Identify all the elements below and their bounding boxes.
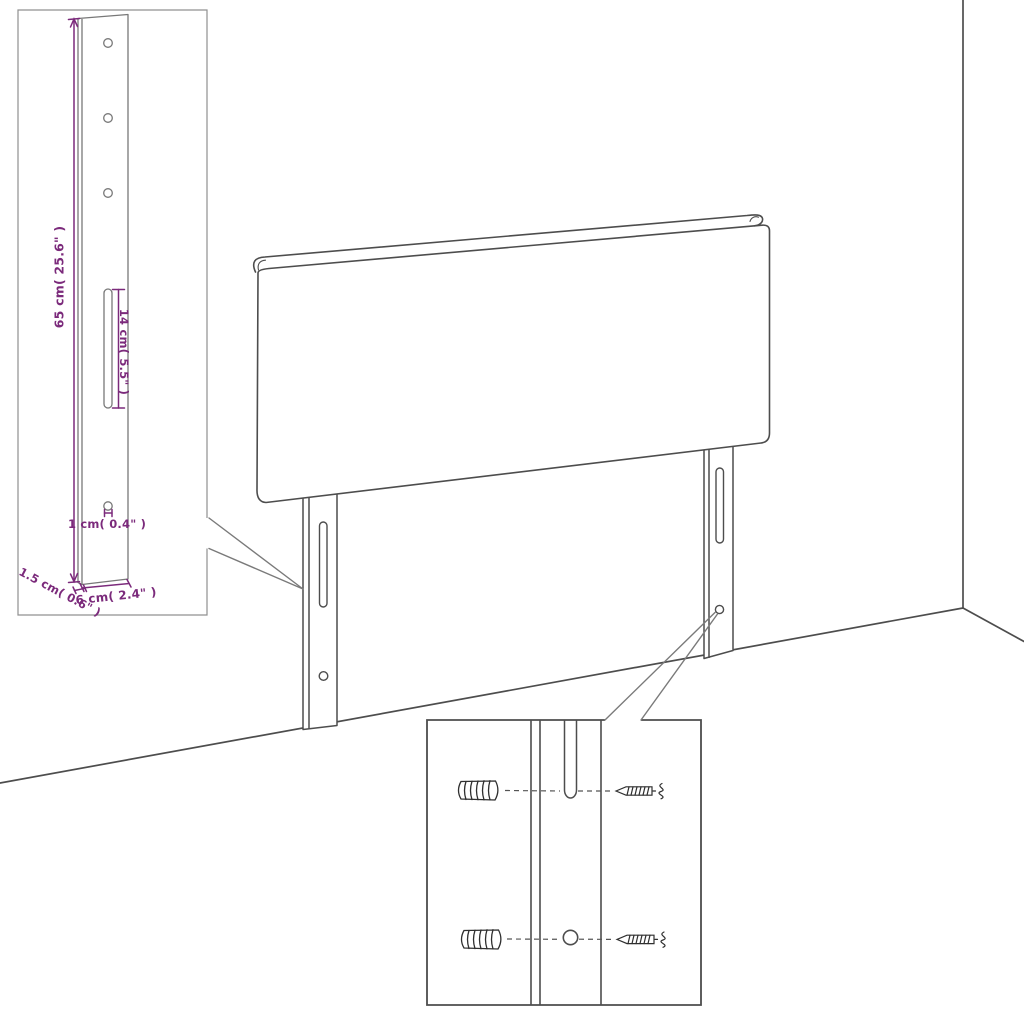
- dim-label-slot-length: 14 cm( 5.5" ): [117, 309, 131, 395]
- wall-plug-icon: [462, 930, 501, 949]
- diagram-canvas: 65 cm( 25.6" ) 14 cm( 5.5" ) 1 cm( 0.4" …: [0, 0, 1024, 1024]
- headboard-panel: [254, 215, 770, 503]
- callout-wedge-1: [209, 518, 303, 589]
- bracket-body: [78, 15, 128, 585]
- dim-label-bracket-height: 65 cm( 25.6" ): [52, 226, 67, 328]
- left-leg: [303, 493, 337, 730]
- dim-label-hole-diameter: 1 cm( 0.4" ): [68, 517, 146, 531]
- inset-mounting-detail: [427, 720, 701, 1005]
- callout-wedge-2: [605, 613, 718, 721]
- wall-plug-icon: [459, 781, 498, 800]
- line-art: [0, 0, 1024, 1024]
